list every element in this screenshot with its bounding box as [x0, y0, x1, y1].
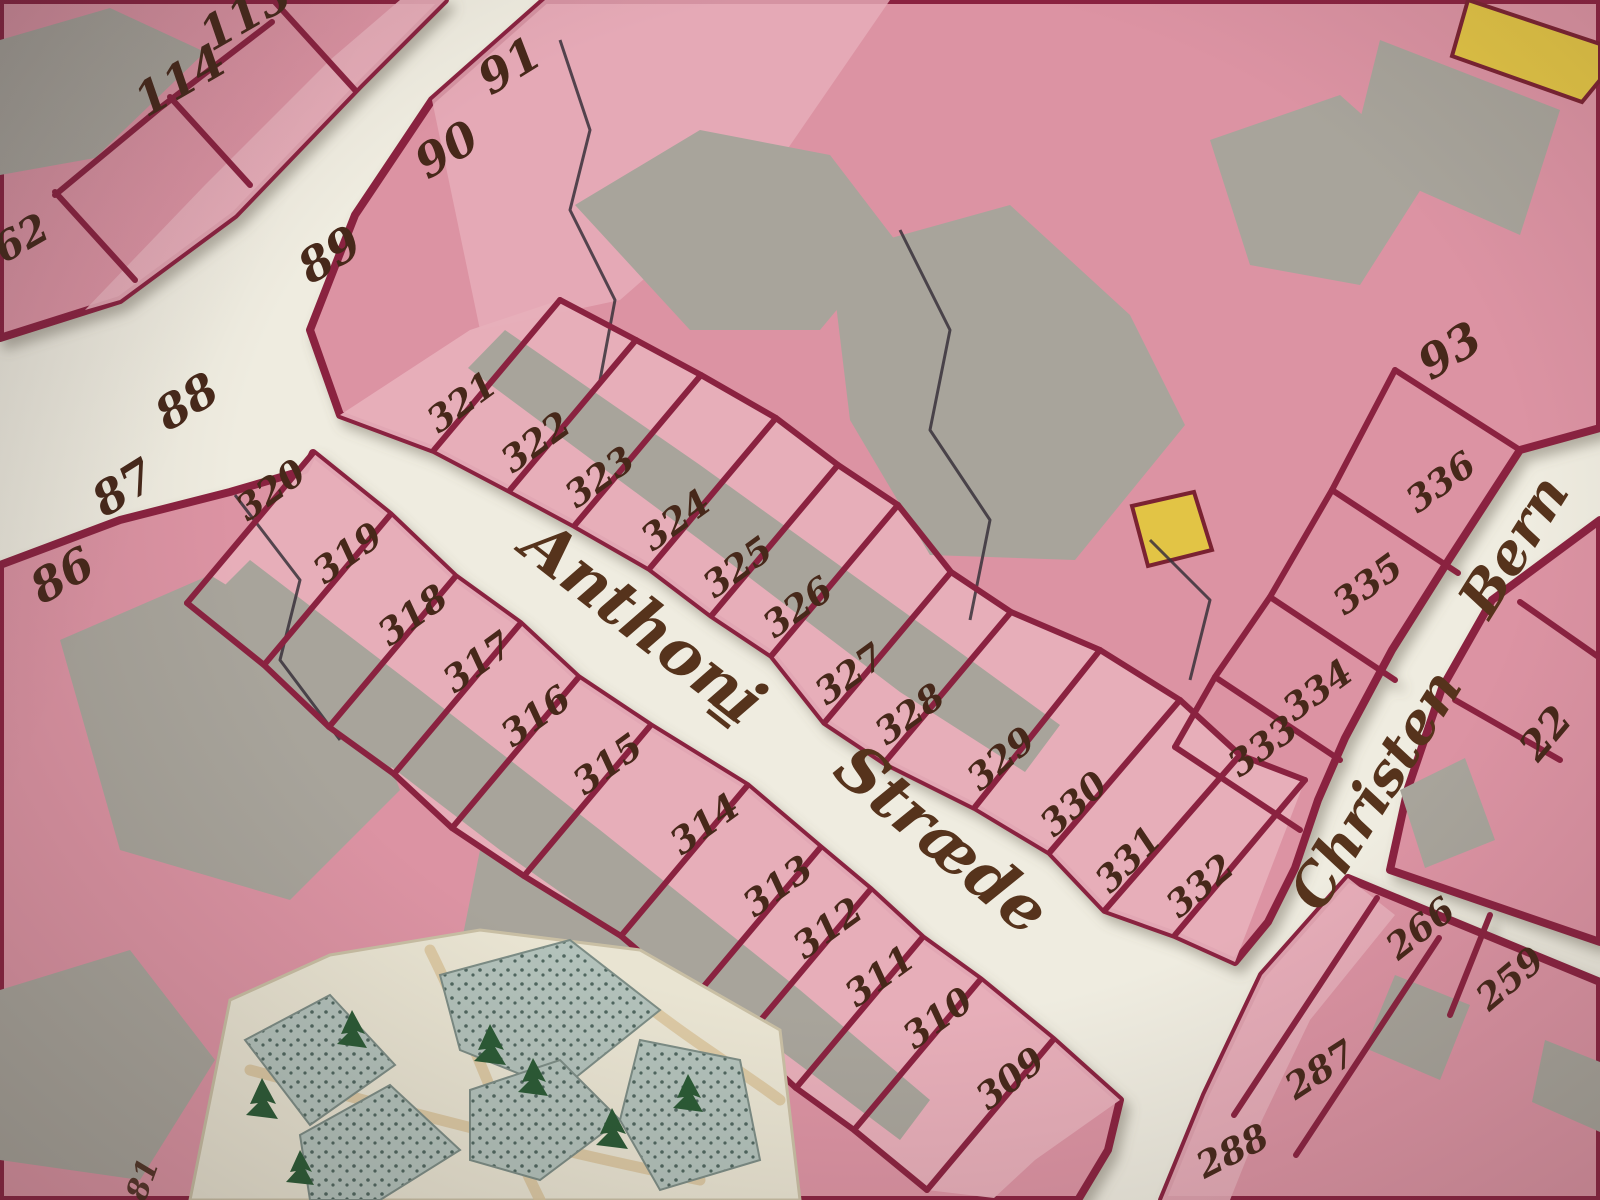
historical-map: 113 114 62 91 90 89 93 88 87 86 321 322 …: [0, 0, 1600, 1200]
map-canvas: 113 114 62 91 90 89 93 88 87 86 321 322 …: [0, 0, 1600, 1200]
